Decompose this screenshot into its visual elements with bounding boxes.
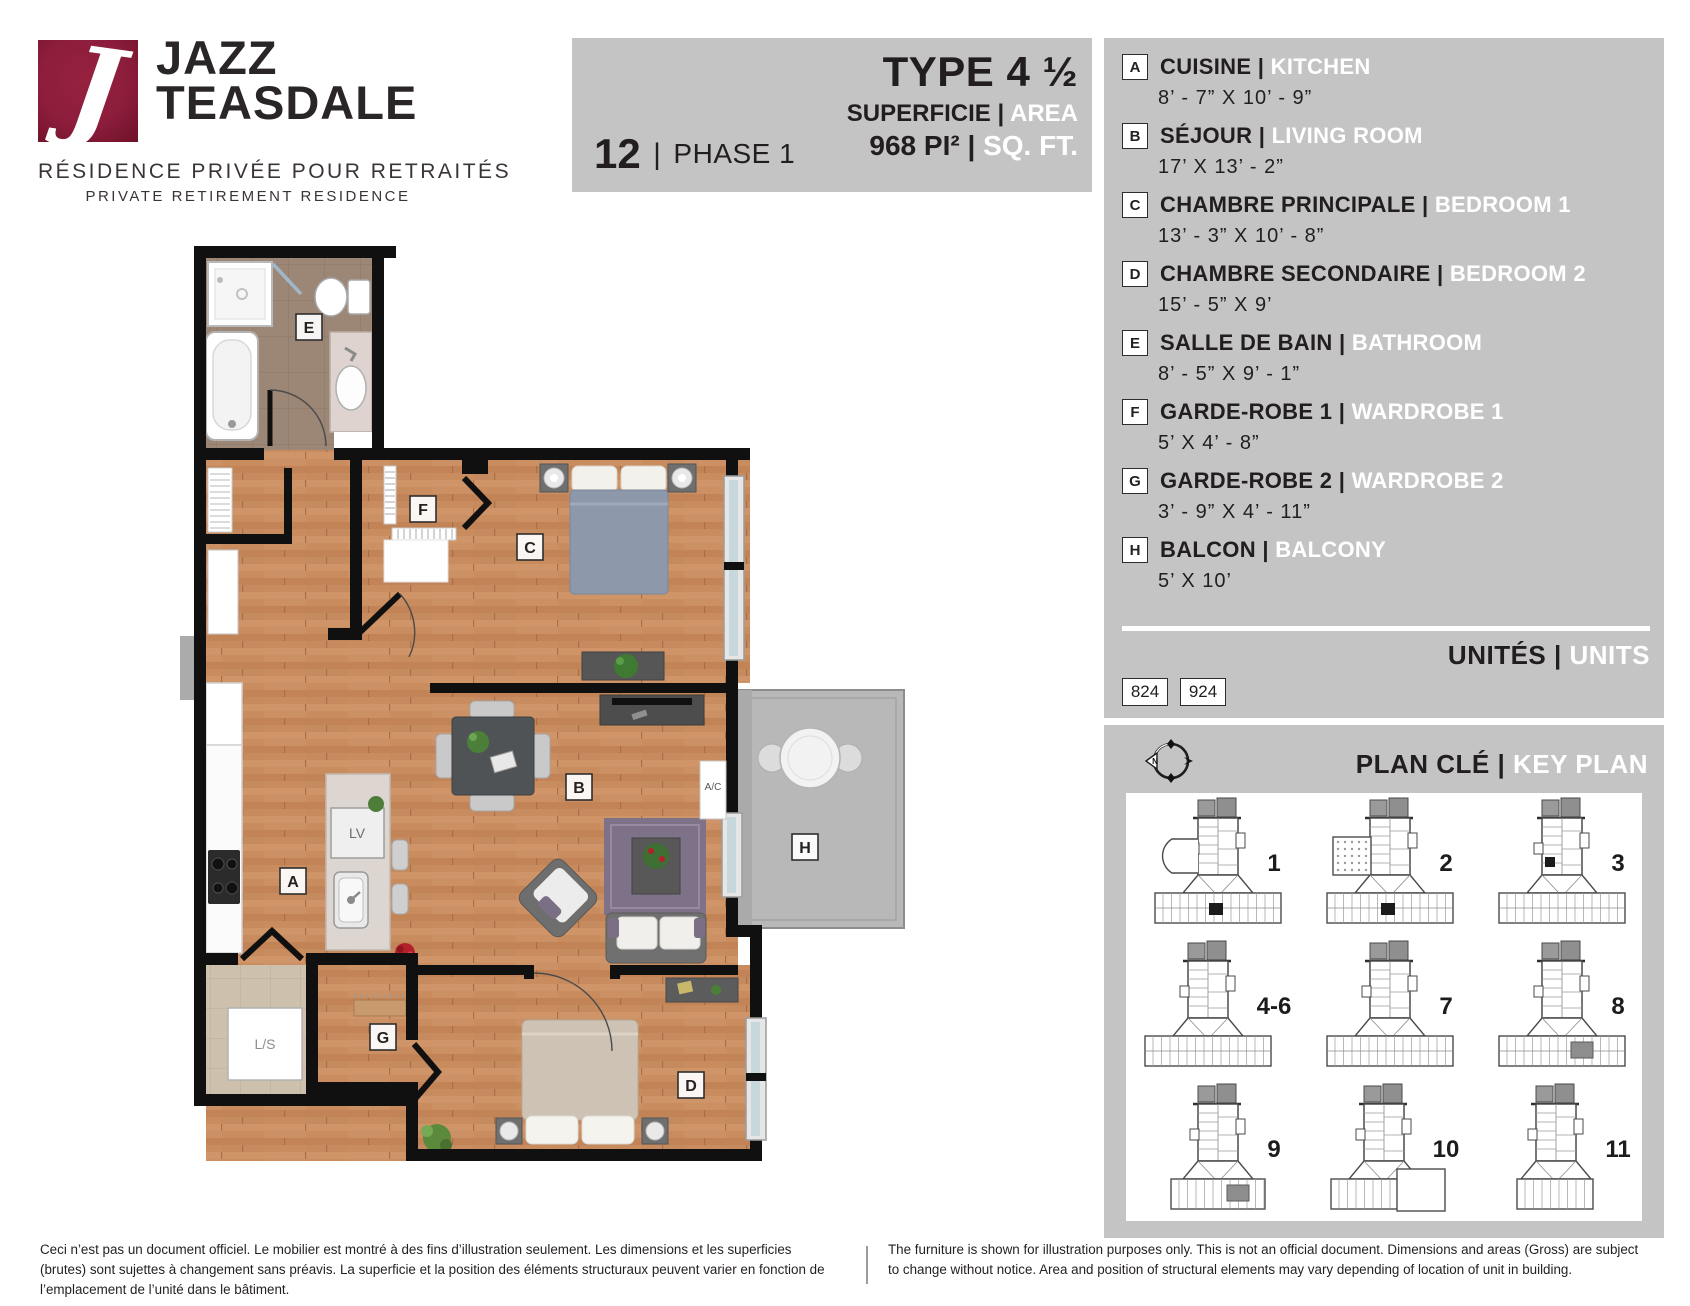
legend-room-name: CUISINE | KITCHEN [1160,54,1371,80]
svg-text:B: B [573,780,585,797]
bedroom2-window [746,1018,766,1140]
unit-badge-824: 824 [1122,678,1168,706]
legend-room-dims: 8’ - 7” X 10’ - 9” [1158,87,1646,110]
legend-room-name: BALCON | BALCONY [1160,537,1386,563]
legend-room-dims: 5’ X 4’ - 8” [1158,432,1646,455]
svg-text:A/C: A/C [705,782,722,793]
unit-number-badges: 824924 [1122,678,1226,706]
svg-text:E: E [304,320,315,337]
room-label-B: B [566,774,592,800]
legend-item-A: A CUISINE | KITCHEN 8’ - 7” X 10’ - 9” [1122,54,1646,110]
legend-room-dims: 13’ - 3” X 10’ - 8” [1158,225,1646,248]
toilet [315,278,370,316]
key-plan-grid: 1 2 3 [1126,793,1642,1221]
unit-badge-924: 924 [1180,678,1226,706]
legend-room-name: GARDE-ROBE 1 | WARDROBE 1 [1160,399,1504,425]
room-label-E: E [296,314,322,340]
balcony-door [722,813,742,897]
room-label-F: F [410,496,436,522]
keyplan-building-label: 9 [1267,1136,1280,1164]
stove [208,850,240,904]
bedroom2-desk [666,978,738,1002]
footer-divider [866,1246,868,1284]
legend-room-dims: 15’ - 5” X 9’ [1158,294,1646,317]
legend-room-name: SÉJOUR | LIVING ROOM [1160,123,1423,149]
keyplan-building-label: 7 [1439,993,1452,1021]
legend-room-dims: 17’ X 13’ - 2” [1158,156,1646,179]
svg-text:C: C [524,540,536,557]
floor-plan-drawing: E F C A B G D H LV L/S A/C [180,228,920,1176]
ac-label: A/C [700,761,726,819]
bedroom1-window [724,476,744,660]
area-rug [604,818,706,915]
key-plan-panel: N PLAN CLÉ | KEY PLAN 1 2 [1104,725,1664,1238]
keyplan-cell-1: 1 [1126,793,1298,936]
legend-letter-badge: B [1122,123,1148,149]
keyplan-cell-4-6: 4-6 [1126,936,1298,1079]
brand-name: JAZZ TEASDALE [156,36,417,125]
keyplan-cell-3: 3 [1470,793,1642,936]
brand-name-line2: TEASDALE [156,81,417,126]
type-title: TYPE 4 ½ [847,48,1078,96]
room-legend-list: A CUISINE | KITCHEN 8’ - 7” X 10’ - 9” B… [1122,54,1646,606]
superficie-label: SUPERFICIE | AREA [847,100,1078,128]
legend-room-dims: 5’ X 10’ [1158,570,1646,593]
exterior-landing [180,636,194,700]
svg-text:D: D [685,1078,697,1095]
legend-letter-badge: A [1122,54,1148,80]
keyplan-cell-9: 9 [1126,1078,1298,1221]
svg-text:H: H [799,840,811,857]
brand-logo: J [38,40,138,142]
keyplan-cell-7: 7 [1298,936,1470,1079]
sofa [606,913,706,963]
legend-item-D: D CHAMBRE SECONDAIRE | BEDROOM 2 15’ - 5… [1122,261,1646,317]
brand-name-line1: JAZZ [156,36,417,81]
legend-room-name: SALLE DE BAIN | BATHROOM [1160,330,1482,356]
unit-number: 12 [594,130,641,177]
legend-letter-badge: G [1122,468,1148,494]
legend-item-F: F GARDE-ROBE 1 | WARDROBE 1 5’ X 4’ - 8” [1122,399,1646,455]
disclaimer-fr: Ceci n’est pas un document officiel. Le … [40,1240,836,1300]
key-plan-title: PLAN CLÉ | KEY PLAN [1356,749,1648,780]
keyplan-building-label: 1 [1267,850,1280,878]
keyplan-cell-11: 11 [1470,1078,1642,1221]
room-label-D: D [678,1072,704,1098]
keyplan-building-label: 8 [1611,993,1624,1021]
dishwasher-label: LV [349,825,366,841]
room-label-G: G [370,1024,396,1050]
area-value: 968 PI² | SQ. FT. [847,130,1078,162]
room-legend-panel: A CUISINE | KITCHEN 8’ - 7” X 10’ - 9” B… [1104,38,1664,718]
legend-divider [1122,626,1650,631]
legend-letter-badge: H [1122,537,1148,563]
phase-label: PHASE 1 [673,138,795,169]
legend-item-C: C CHAMBRE PRINCIPALE | BEDROOM 1 13’ - 3… [1122,192,1646,248]
legend-letter-badge: C [1122,192,1148,218]
stool [392,884,408,914]
bathtub [206,332,258,440]
stool [392,840,408,870]
legend-letter-badge: F [1122,399,1148,425]
keyplan-building-label: 10 [1433,1136,1460,1164]
svg-text:A: A [287,874,299,891]
unit-phase: 12 | PHASE 1 [594,130,795,178]
compass-icon: N [1144,735,1196,792]
keyplan-cell-8: 8 [1470,936,1642,1079]
vanity-sink [330,332,372,448]
legend-room-name: CHAMBRE SECONDAIRE | BEDROOM 2 [1160,261,1586,287]
legend-letter-badge: E [1122,330,1148,356]
room-label-H: H [792,834,818,860]
island-plant [368,796,384,812]
brand-tagline-en: PRIVATE RETIREMENT RESIDENCE [38,188,458,205]
type-block: TYPE 4 ½ SUPERFICIE | AREA 968 PI² | SQ.… [847,48,1078,162]
legend-item-E: E SALLE DE BAIN | BATHROOM 8’ - 5” X 9’ … [1122,330,1646,386]
keyplan-building-label: 11 [1605,1136,1630,1164]
kitchen-counter [206,683,242,953]
svg-text:N: N [1152,757,1158,766]
type-header-panel: 12 | PHASE 1 TYPE 4 ½ SUPERFICIE | AREA … [572,38,1092,192]
svg-text:G: G [377,1030,389,1047]
balcony-floor [738,690,904,928]
logo-j-glyph: J [38,18,155,160]
keyplan-building-label: 3 [1611,850,1624,878]
legend-room-name: CHAMBRE PRINCIPALE | BEDROOM 1 [1160,192,1571,218]
room-label-A: A [280,868,306,894]
room-label-C: C [517,534,543,560]
disclaimer-en: The furniture is shown for illustration … [888,1240,1648,1280]
units-heading: UNITÉS | UNITS [1448,640,1650,671]
legend-room-dims: 3’ - 9” X 4’ - 11” [1158,501,1646,524]
island-sink [334,872,368,928]
brand-tagline-fr: RÉSIDENCE PRIVÉE POUR RETRAITÉS [38,160,458,184]
floor-plan: E F C A B G D H LV L/S A/C [180,228,920,1181]
legend-item-G: G GARDE-ROBE 2 | WARDROBE 2 3’ - 9” X 4’… [1122,468,1646,524]
legend-letter-badge: D [1122,261,1148,287]
legend-room-name: GARDE-ROBE 2 | WARDROBE 2 [1160,468,1504,494]
tv-console [600,695,704,725]
keyplan-building-label: 4-6 [1257,993,1292,1021]
legend-room-dims: 8’ - 5” X 9’ - 1” [1158,363,1646,386]
bedroom1-dresser [582,652,664,680]
svg-text:F: F [418,502,428,519]
washer-dryer-label: L/S [254,1036,275,1052]
legend-item-H: H BALCON | BALCONY 5’ X 10’ [1122,537,1646,593]
keyplan-building-label: 2 [1439,850,1452,878]
keyplan-cell-10: 10 [1298,1078,1470,1221]
legend-item-B: B SÉJOUR | LIVING ROOM 17’ X 13’ - 2” [1122,123,1646,179]
keyplan-cell-2: 2 [1298,793,1470,936]
